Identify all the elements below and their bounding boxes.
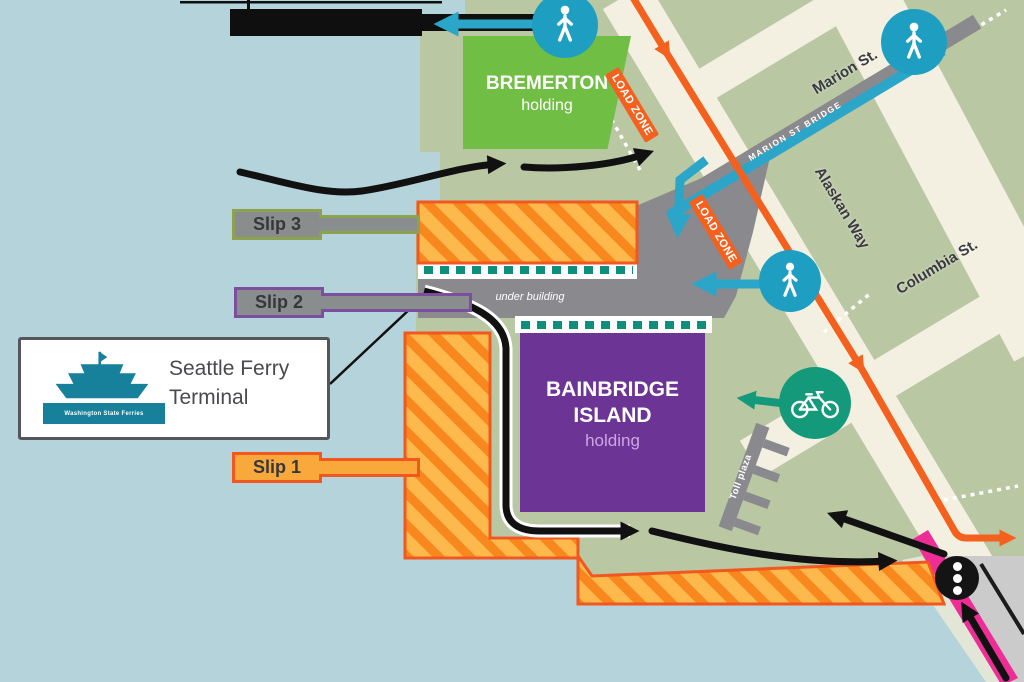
slip-1-label: Slip 1 [232, 452, 322, 483]
signal-light [953, 562, 962, 571]
slip-1-pier [319, 458, 420, 477]
terminal-callout-title: Seattle Ferry Terminal [169, 354, 289, 412]
washington-state-ferries-logo [47, 350, 157, 400]
signal-light [953, 586, 962, 595]
under-building-label: under building [495, 291, 564, 303]
pier-structure-upper [418, 202, 637, 263]
pedestrian-icon [881, 9, 947, 75]
bainbridge-holding-title2: ISLAND [520, 403, 705, 429]
slip-1-text: Slip 1 [253, 457, 301, 478]
bainbridge-holding-area: BAINBRIDGE ISLAND holding [520, 333, 705, 512]
pedestrian-icon [759, 250, 821, 312]
terminal-callout-line1: Seattle Ferry [169, 354, 289, 383]
slip-3-pier [319, 215, 420, 234]
bremerton-holding-sub: holding [463, 96, 631, 116]
bicycle-icon [779, 367, 851, 439]
signal-light [953, 574, 962, 583]
terminal-callout-box: Washington State Ferries Seattle Ferry T… [18, 337, 330, 440]
terminal-callout-line2: Terminal [169, 383, 289, 412]
slip-2-pier [321, 293, 472, 312]
slip-2-label: Slip 2 [234, 287, 324, 318]
logo-banner: Washington State Ferries [43, 403, 165, 424]
slip-3-text: Slip 3 [253, 214, 301, 235]
traffic-signal-icon [935, 556, 979, 600]
slip-3-label: Slip 3 [232, 209, 322, 240]
bainbridge-holding-title1: BAINBRIDGE [520, 377, 705, 403]
slip-2-text: Slip 2 [255, 292, 303, 313]
bainbridge-holding-sub: holding [520, 429, 705, 453]
seattle-ferry-terminal-map: BREMERTON holding BAINBRIDGE ISLAND hold… [0, 0, 1024, 682]
